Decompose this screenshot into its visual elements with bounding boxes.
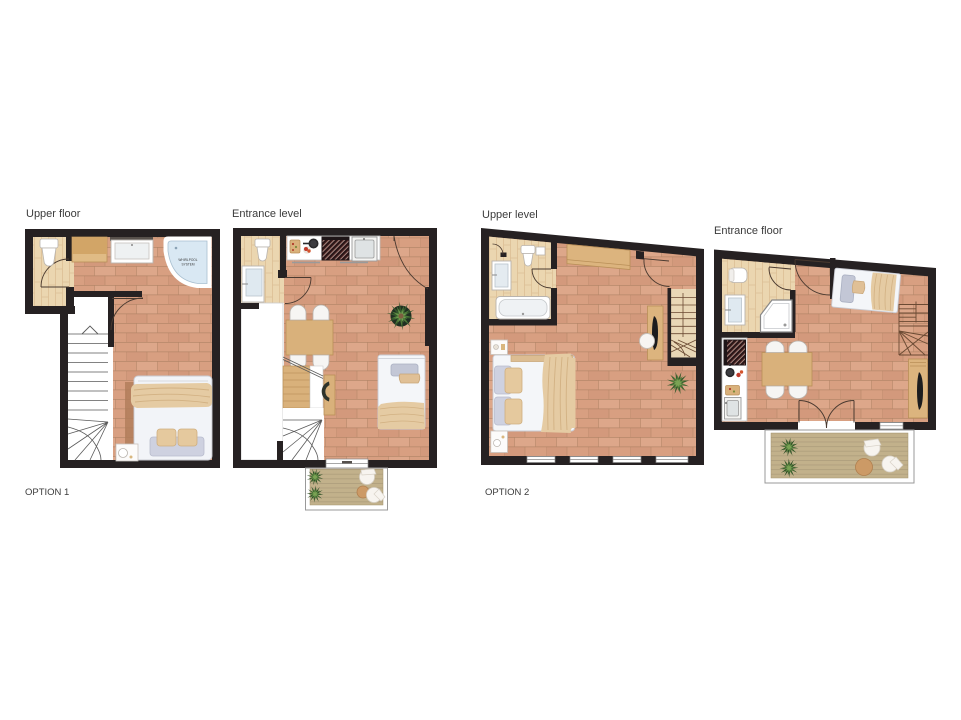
svg-text:Entrance floor: Entrance floor	[714, 225, 783, 237]
svg-text:Entrance level: Entrance level	[232, 208, 302, 220]
svg-text:SYSTEM: SYSTEM	[181, 263, 194, 267]
svg-text:OPTION 2: OPTION 2	[485, 487, 529, 498]
svg-text:WHIRLPOOL: WHIRLPOOL	[178, 258, 197, 262]
svg-text:Upper floor: Upper floor	[26, 208, 81, 220]
svg-text:OPTION 1: OPTION 1	[25, 487, 69, 498]
svg-text:Upper level: Upper level	[482, 209, 538, 221]
